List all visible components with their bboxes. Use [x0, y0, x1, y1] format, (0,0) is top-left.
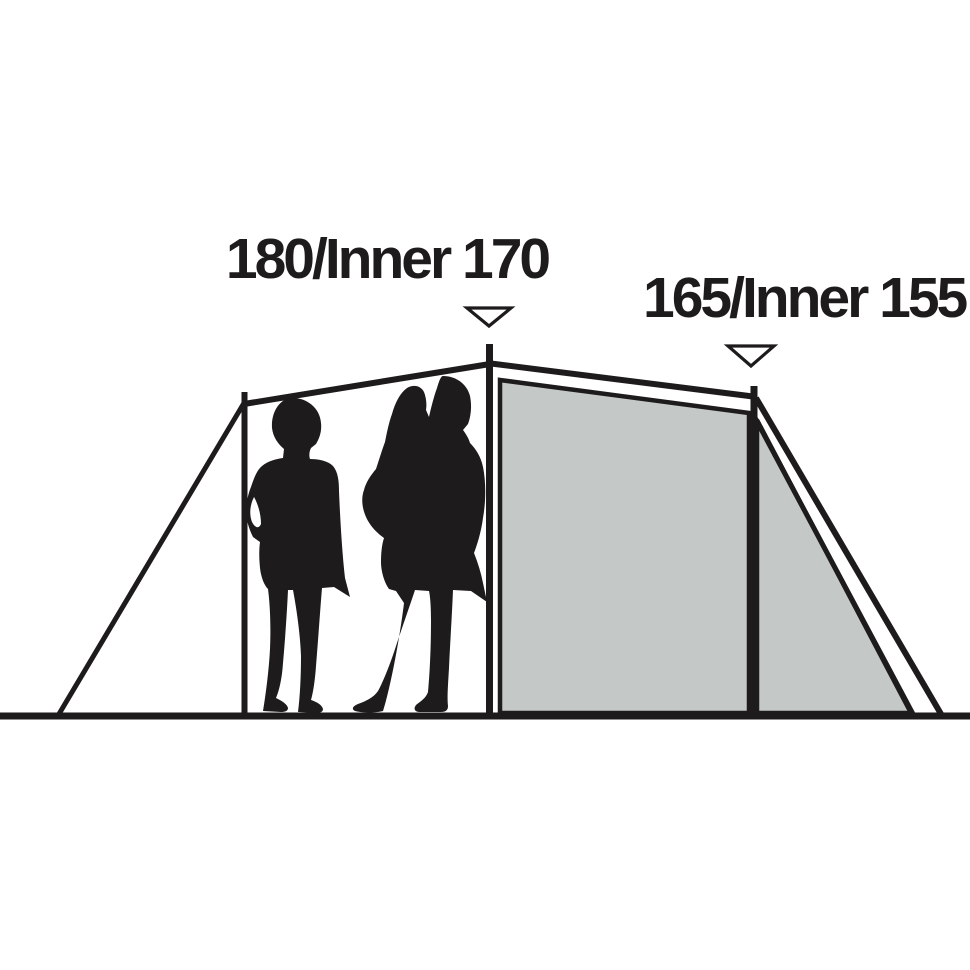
inner-tent-front-panel	[500, 380, 749, 713]
down-triangle-marker-left	[467, 308, 511, 326]
adult-silhouette	[246, 398, 350, 713]
front-height-label: 180/Inner 170	[187, 231, 587, 288]
tent-height-diagram: 180/Inner 170 165/Inner 155	[0, 0, 970, 970]
adult-carrying-child-silhouette	[353, 376, 487, 713]
down-triangle-marker-right	[728, 346, 774, 366]
tent-structure-svg	[0, 0, 970, 970]
guy-line	[59, 403, 244, 714]
rear-height-label: 165/Inner 155	[643, 270, 965, 327]
